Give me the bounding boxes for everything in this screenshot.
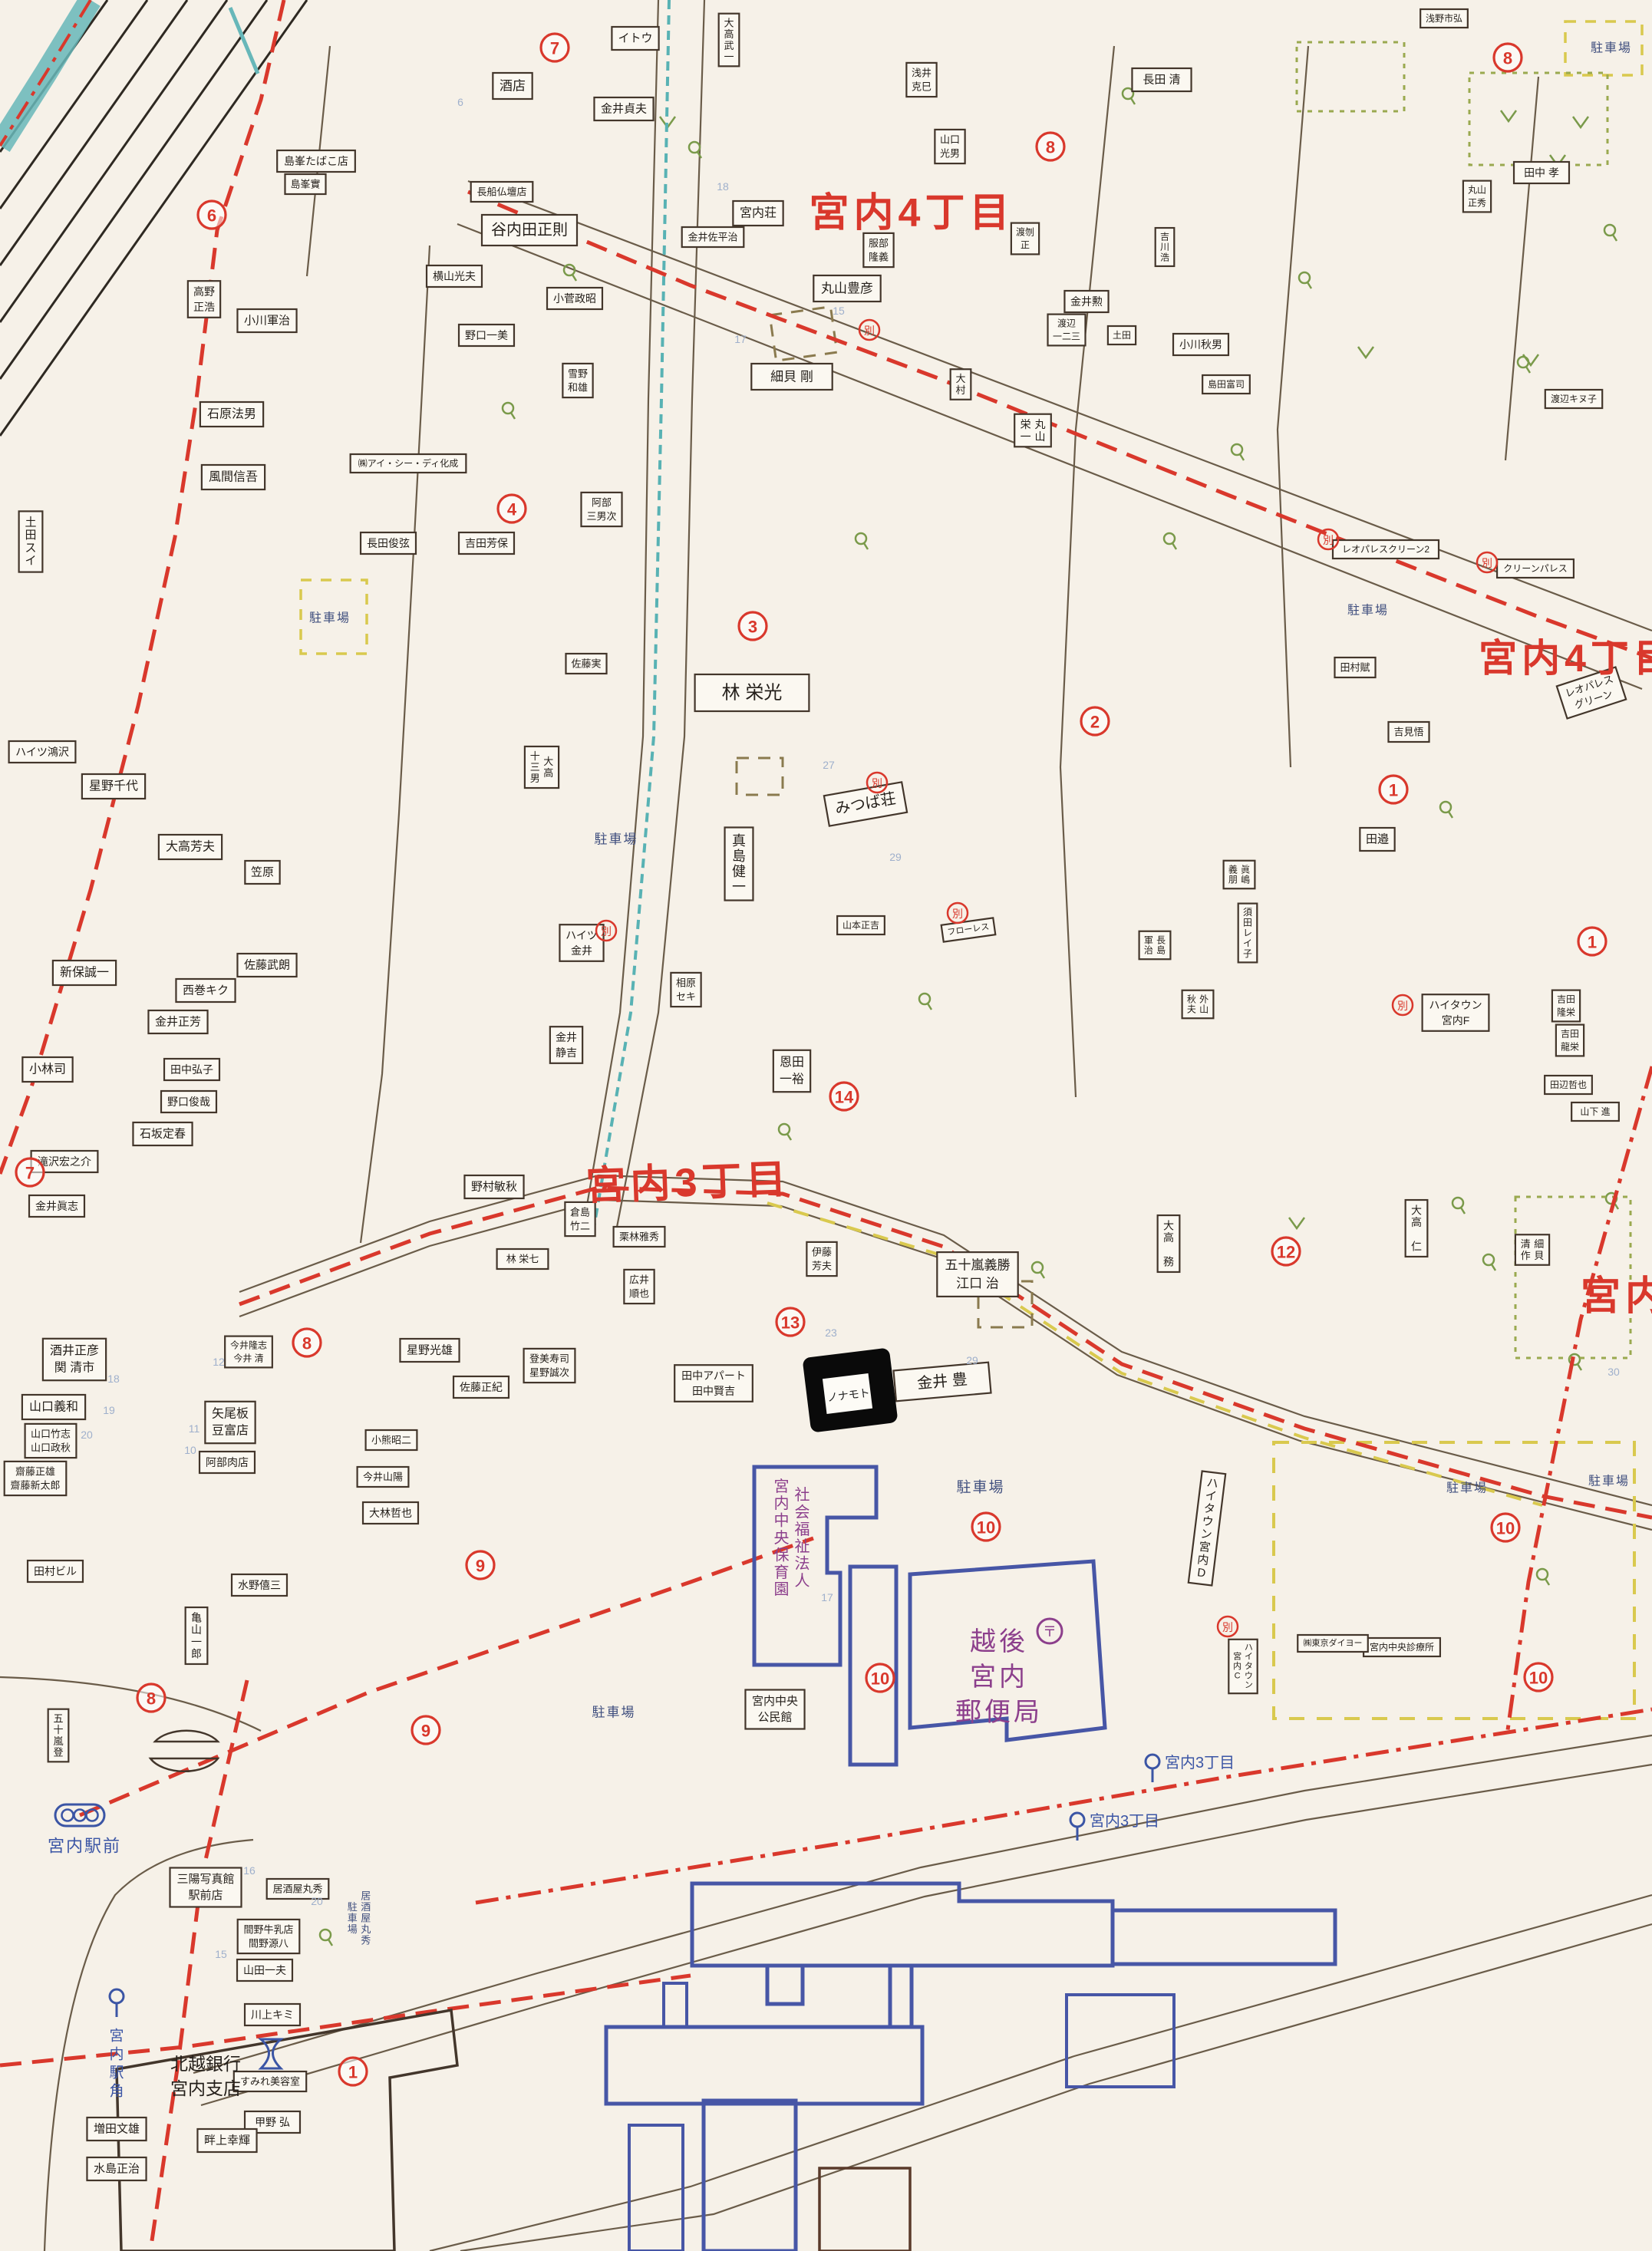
building-label: 高: [543, 767, 553, 779]
circled-number-value: 9: [421, 1722, 430, 1741]
building-label: 浅井: [912, 67, 932, 78]
building: 小川秋男: [1173, 334, 1228, 355]
building: 増田文雄: [87, 2118, 146, 2141]
building-label: 丸: [361, 1923, 371, 1935]
building: 田村賦: [1334, 658, 1375, 677]
building-label: 武: [724, 40, 734, 51]
building-label: 子: [1243, 948, 1252, 959]
parking-label: 駐車場: [1588, 1475, 1630, 1488]
building: 長船仏壇店: [471, 182, 533, 202]
building: 林 栄七: [497, 1249, 549, 1269]
building-label: 務: [1163, 1256, 1174, 1268]
building-label: 新保誠一: [60, 966, 109, 980]
parking-label: 駐車場: [1446, 1481, 1488, 1495]
building: 雪野和雄: [562, 364, 592, 397]
building: 島峯たばこ店: [277, 150, 355, 172]
building-label: 一二三: [1053, 331, 1080, 341]
building-label: 細貝 剛: [770, 370, 813, 384]
building-label: 金井眞志: [35, 1200, 78, 1212]
building: ハイタウン宮内F: [1423, 994, 1489, 1031]
lot-number: 23: [825, 1327, 837, 1339]
building: 石坂定春: [133, 1122, 192, 1145]
building: 横山光夫: [427, 265, 482, 287]
building: 五十嵐義勝江口 治: [937, 1252, 1017, 1297]
svg-text:別: 別: [872, 777, 882, 789]
building: 丸山栄一: [1014, 414, 1051, 447]
building-label: 金井貞夫: [601, 103, 647, 116]
building: 長田 清: [1132, 68, 1191, 91]
building: 長田俊弦: [361, 532, 416, 554]
building: 外山秋夫: [1182, 990, 1214, 1018]
building: 土田: [1108, 326, 1136, 344]
building-label: 栄: [1021, 418, 1031, 430]
building: 長島軍治: [1139, 931, 1171, 959]
building-label: 山口政秋: [31, 1442, 71, 1454]
building-label: 法: [795, 1555, 810, 1573]
circled-number-value: 13: [781, 1313, 800, 1333]
building: 新保誠一: [53, 961, 116, 985]
building-label: 高: [724, 28, 734, 40]
building: 宮内中央診療所: [1363, 1638, 1440, 1656]
building-label: 小川軍治: [244, 315, 290, 328]
residential-map-scan: 島峯たばこ店島峯實高野正浩小川軍治石原法男風間信吾土田スイハイツ鴻沢星野千代大高…: [0, 0, 1652, 2251]
building: ハイタウン宮内C: [1228, 1640, 1257, 1693]
building-label: 関 清市: [54, 1361, 94, 1375]
building-label: 夫: [1187, 1004, 1196, 1015]
building-label: 正: [1021, 239, 1030, 250]
building: 相原セキ: [671, 973, 701, 1007]
svg-text:別: 別: [952, 908, 963, 920]
svg-text:別: 別: [864, 325, 875, 337]
building-label: 江口 治: [956, 1276, 999, 1290]
building: 三陽写真館駅前店: [170, 1868, 242, 1907]
district-label: 宮内4丁目: [810, 191, 1014, 236]
building-label: 内: [774, 1495, 790, 1512]
building-label: 島峯たばこ店: [284, 155, 348, 167]
building-label: すみれ美容室: [240, 2076, 300, 2088]
building-label: 小熊昭二: [371, 1435, 411, 1446]
building: 金井勲: [1064, 291, 1108, 312]
building-label: 田中賢吉: [692, 1385, 735, 1397]
building-label: 竹二: [570, 1221, 590, 1232]
building-label: 治: [1144, 945, 1153, 956]
building: 今井隆志今井 清: [225, 1336, 272, 1368]
building-label: 田: [25, 529, 36, 542]
building: ㈱東京ダイヨー: [1298, 1635, 1368, 1652]
building-label: ス: [25, 542, 36, 555]
building-label: 和雄: [568, 382, 588, 394]
building-label: 石原法男: [207, 407, 256, 421]
building: 吉田芳保: [459, 532, 514, 554]
building: 風間信吾: [202, 465, 265, 489]
building-label: 高野: [193, 285, 215, 298]
building-label: 長: [1156, 934, 1166, 945]
building: 小菅政昭: [547, 288, 602, 309]
building-label: 細: [1534, 1238, 1544, 1250]
bus-stop-name: 内: [109, 2046, 124, 2063]
building-label: 央: [774, 1529, 790, 1547]
building: 野村敏秋: [464, 1175, 523, 1198]
building-label: イ: [1205, 1489, 1218, 1504]
building: 眞嶋義朋: [1224, 861, 1255, 888]
building: 佐藤実: [566, 654, 606, 674]
building-label: 田邉: [1366, 833, 1389, 846]
building-label: 三陽写真館: [176, 1872, 234, 1886]
building-label: 矢尾板: [212, 1406, 249, 1420]
building-label: 山: [1199, 1004, 1208, 1015]
circled-number-value: 1: [1389, 781, 1398, 800]
building-label: 宮内中央: [752, 1695, 798, 1708]
lot-number: 20: [81, 1429, 93, 1441]
parking-label: 駐車場: [592, 1706, 636, 1720]
building: 今井山陽: [358, 1467, 409, 1487]
building-label: ン: [1245, 1681, 1253, 1690]
building: 島峯實: [285, 174, 325, 194]
lot-number: 18: [107, 1373, 120, 1385]
building-label: 公民館: [757, 1711, 792, 1724]
building: 須田レイ子: [1238, 904, 1258, 963]
circled-number-value: 9: [476, 1557, 485, 1576]
building-label: 正浩: [193, 301, 215, 313]
building: 田辺哲也: [1545, 1076, 1592, 1094]
bus-stop-name: 宮: [109, 2028, 124, 2045]
building: 伊藤芳夫: [806, 1242, 836, 1276]
building-label: 須: [1243, 907, 1252, 918]
building-label: 宮内F: [1442, 1014, 1470, 1027]
building-label: 屋: [361, 1913, 371, 1924]
building: 吉川浩: [1156, 228, 1175, 266]
building-label: イ: [1245, 1653, 1253, 1662]
building: 山口光男: [935, 130, 964, 163]
building-label: 宮: [1198, 1541, 1211, 1555]
circled-number-value: 6: [207, 206, 216, 226]
building: 浅野市弘: [1420, 9, 1468, 28]
lot-number: 12: [213, 1356, 225, 1368]
circled-number-value: 8: [1503, 49, 1512, 68]
bus-stop-name: 宮内3丁目: [1090, 1812, 1159, 1830]
building-label: 健: [732, 864, 746, 879]
building-label: 秋: [1187, 994, 1196, 1004]
building-label: 郎: [191, 1648, 202, 1660]
building-label: 小川秋男: [1179, 338, 1222, 351]
building: 広井順也: [624, 1270, 654, 1303]
building: 酒店: [493, 73, 532, 99]
building: 宮内荘: [733, 201, 783, 226]
building-label: ハイツ: [566, 929, 598, 941]
building-label: 大: [955, 373, 965, 384]
building: 渡辺一二三: [1048, 315, 1086, 346]
building: 田中アパート田中賢吉: [674, 1365, 753, 1402]
building-label: 丸山豊彦: [821, 282, 873, 296]
circled-number-value: 4: [507, 500, 517, 519]
building-label: 林 栄七: [506, 1254, 539, 1265]
building-label: 中: [774, 1512, 790, 1530]
building: 川上キミ: [245, 2004, 300, 2025]
building-label: 作: [1521, 1250, 1531, 1261]
lot-number: 11: [189, 1422, 200, 1435]
building: 大高芳夫: [159, 835, 222, 859]
circled-number: 7: [541, 34, 569, 61]
building-label: ウ: [1202, 1514, 1215, 1529]
building: 小熊昭二: [366, 1430, 417, 1450]
circled-number: 1: [1380, 776, 1407, 803]
parking-label: 駐車場: [956, 1479, 1004, 1496]
building-label: ン: [1199, 1528, 1212, 1542]
building-label: 川: [1160, 242, 1169, 252]
building: 五十嵐登: [48, 1709, 69, 1762]
building-label: 林 栄光: [722, 683, 783, 704]
building-label: 浅野市弘: [1426, 12, 1462, 24]
building-label: 石坂定春: [140, 1128, 186, 1141]
building: 大村: [951, 369, 971, 400]
building-label: 保: [774, 1546, 790, 1564]
building: 田邉: [1360, 828, 1394, 851]
building-label: 人: [795, 1572, 810, 1590]
building-label: 亀: [191, 1611, 202, 1623]
building-label: 真: [732, 833, 746, 849]
building-label: 丸: [1034, 418, 1045, 430]
building-label: 田中アパート: [681, 1369, 746, 1382]
parking-label: 駐車場: [309, 611, 351, 625]
building: ハイツ鴻沢: [9, 741, 76, 763]
building-label: 渡刎: [1016, 226, 1034, 238]
lot-number: 16: [243, 1864, 256, 1877]
building: 大高 務: [1158, 1215, 1180, 1272]
building-label: レ: [1243, 928, 1252, 938]
building-label: 大: [543, 756, 553, 767]
building: 亀山一郎: [186, 1607, 208, 1664]
building-label: 渡辺キヌ子: [1551, 393, 1597, 404]
building-label: 内: [1196, 1553, 1209, 1567]
building-label: 星野誠次: [529, 1367, 569, 1379]
building: 山本正吉: [837, 916, 885, 934]
building-label: 小菅政昭: [553, 292, 596, 305]
building-label: 宮内荘: [740, 206, 777, 220]
parking-label: 駐車場: [595, 832, 638, 847]
lot-number: 18: [717, 180, 729, 193]
circled-number: 10: [866, 1664, 894, 1692]
circled-number: 2: [1081, 707, 1109, 735]
building: 矢尾板豆富店: [205, 1402, 255, 1443]
circled-number-value: 8: [302, 1334, 312, 1353]
circled-number-value: 12: [1277, 1243, 1295, 1262]
building: レオパレスクリーン2: [1333, 540, 1439, 559]
lot-number: 6: [457, 96, 463, 108]
svg-text:別: 別: [1222, 1621, 1233, 1633]
building: 金井眞志: [29, 1195, 84, 1217]
building: 田中弘子: [164, 1059, 219, 1080]
building: 細貝 剛: [751, 364, 832, 390]
bus-stop-name: 宮内3丁目: [1165, 1754, 1235, 1771]
building: 星野千代: [82, 774, 145, 799]
building: 服部隆義: [863, 233, 893, 267]
building: 石原法男: [200, 402, 263, 427]
building: 渡辺キヌ子: [1545, 390, 1602, 408]
building-label: 宮: [1233, 1651, 1241, 1662]
building-label: 島: [1156, 944, 1166, 956]
building-label: 島: [732, 849, 746, 864]
building-label: 田: [1243, 918, 1252, 928]
circled-number-value: 3: [748, 618, 757, 637]
building-label: 高: [1411, 1216, 1422, 1228]
circled-number: 4: [498, 495, 526, 522]
building-label: 大: [1411, 1204, 1422, 1216]
building: 齋藤正雄齋藤新太郎: [5, 1462, 67, 1495]
building-label: 園: [774, 1581, 790, 1598]
lot-number: 19: [103, 1404, 115, 1416]
building-label: 駐: [348, 1901, 358, 1913]
circled-number-value: 2: [1090, 713, 1100, 732]
building: 山口義和: [22, 1395, 85, 1419]
building-label: 居: [361, 1890, 371, 1901]
building: 野口俊哉: [161, 1091, 216, 1112]
building: 間野牛乳店間野源八: [238, 1920, 300, 1953]
building: 栗林雅秀: [614, 1227, 665, 1247]
building-label: 金井勲: [1070, 295, 1103, 308]
building: 金井貞夫: [594, 97, 653, 120]
building: 島田富司: [1202, 375, 1250, 394]
building-label: 甲野 弘: [255, 2116, 290, 2128]
building: 谷内田正則: [482, 215, 577, 246]
building: 大林哲也: [363, 1502, 418, 1524]
building-label: ハイツ鴻沢: [15, 746, 69, 758]
circled-number: 10: [1525, 1663, 1552, 1691]
building-label: 金井佐平治: [688, 232, 737, 243]
building-label: イトウ: [618, 32, 652, 45]
lot-number: 30: [1607, 1366, 1620, 1378]
building-label: クリーンパレス: [1503, 563, 1567, 574]
building-label: 光男: [940, 148, 960, 160]
building-label: 五十嵐義勝: [945, 1258, 1011, 1273]
building-label: 風間信吾: [209, 470, 258, 484]
building: 真島健一: [725, 827, 753, 900]
building: 田中 孝: [1514, 162, 1569, 183]
building-label: 宮内中央診療所: [1370, 1641, 1434, 1653]
building-label: 外: [1199, 994, 1208, 1004]
building-label: レオパレスクリーン2: [1342, 544, 1429, 555]
building-label: 山口義和: [29, 1400, 78, 1414]
circled-number: 1: [339, 2058, 367, 2085]
building: 恩田一裕: [773, 1050, 810, 1092]
building-label: 長田俊弦: [367, 537, 410, 549]
building: 吉見悟: [1388, 722, 1429, 742]
building-label: 五: [53, 1713, 63, 1725]
lot-number: 17: [821, 1591, 833, 1603]
building-label: 吉見悟: [1393, 727, 1423, 738]
circled-number: 9: [412, 1716, 440, 1744]
circled-number-value: 10: [871, 1669, 889, 1689]
circled-number: 8: [137, 1684, 165, 1712]
building-label: 田中 孝: [1524, 166, 1559, 179]
building-label: 阿部: [592, 496, 612, 508]
circled-number: 6: [198, 201, 226, 229]
building-label: 渡辺: [1057, 318, 1076, 329]
building-label: 浩: [1160, 252, 1169, 262]
circled-number-value: 10: [1529, 1669, 1548, 1688]
building: 小川軍治: [237, 309, 296, 332]
building-label: 佐藤正紀: [460, 1381, 503, 1393]
building: 水島正治: [87, 2157, 146, 2180]
building-label: 育: [774, 1564, 790, 1581]
building-label: 齋藤正雄: [15, 1465, 55, 1477]
building: 宮内中央公民館: [745, 1690, 804, 1729]
building-label: 大: [724, 18, 734, 29]
building-label: 一: [732, 879, 746, 895]
building-label: 星野千代: [89, 779, 138, 793]
building-label: 川上キミ: [251, 2009, 294, 2021]
building-label: 酒店: [500, 79, 526, 94]
building-label: 十: [53, 1724, 63, 1735]
building-label: 一: [724, 51, 734, 62]
circled-number: 10: [972, 1513, 1000, 1541]
building-label: ハ: [1245, 1643, 1253, 1652]
circled-number-value: 10: [1496, 1519, 1515, 1538]
building: 浅井克巳: [906, 63, 936, 97]
building-label: 一裕: [780, 1073, 804, 1086]
building-label: 山本正吉: [842, 920, 879, 931]
building-label: 酒: [361, 1901, 371, 1913]
station-front-label: 宮内駅前: [48, 1837, 121, 1856]
building-label: 星野光雄: [407, 1344, 453, 1357]
svg-text:別: 別: [1323, 534, 1334, 546]
building-label: 三: [530, 762, 540, 773]
postal-mark-glyph: 〒: [1043, 1624, 1057, 1640]
building: 金井正芳: [148, 1010, 207, 1033]
building: 星野光雄: [400, 1339, 459, 1362]
building: 丸山豊彦: [813, 275, 880, 302]
building-label: 義: [1228, 863, 1238, 875]
building-label: 伊藤: [812, 1246, 832, 1257]
building-label: 社: [795, 1486, 810, 1504]
circled-number: 10: [1492, 1514, 1519, 1541]
building-label: 金井: [556, 1031, 577, 1043]
building-label: 宮: [774, 1478, 790, 1495]
bus-stop-name: 駅: [109, 2065, 124, 2081]
post-office-name: 郵便局: [955, 1698, 1043, 1727]
district-label: 宮内4丁目: [1479, 637, 1652, 680]
building-label: 水野僖三: [238, 1579, 281, 1591]
building-label: 居酒屋丸秀: [272, 1884, 322, 1895]
building-label: 吉田: [1557, 994, 1575, 1005]
building-label: 北越銀行: [170, 2054, 241, 2074]
building-label: 大林哲也: [369, 1507, 412, 1519]
building-label: 静吉: [556, 1046, 577, 1059]
building: 渡刎正: [1011, 223, 1039, 255]
building-label: 田中弘子: [170, 1063, 213, 1076]
building-label: 隆義: [869, 252, 889, 263]
building-label: 畔上幸輝: [204, 2134, 250, 2147]
building: 大高武一: [719, 14, 740, 67]
lot-number: 17: [734, 333, 747, 345]
building-label: 吉田: [1561, 1029, 1579, 1040]
building-label: 野口俊哉: [167, 1096, 210, 1108]
circled-number: 9: [467, 1551, 494, 1579]
building-label: 笠原: [251, 866, 274, 879]
building-label: 一: [1021, 430, 1031, 443]
building: 田村ビル: [28, 1561, 83, 1582]
building-label: 吉: [1160, 232, 1169, 242]
building-label: 駅前店: [188, 1889, 223, 1902]
circled-number: 13: [777, 1308, 804, 1336]
building-label: 齋藤新太郎: [10, 1480, 60, 1491]
building: 山田一夫: [237, 1959, 292, 1981]
building: 細貝清作: [1515, 1234, 1549, 1265]
building-label: 田村ビル: [34, 1565, 77, 1577]
building: 酒井正彦関 清市: [43, 1339, 106, 1380]
building-label: 阿部肉店: [206, 1456, 249, 1468]
building: 笠原: [245, 861, 279, 884]
building: 丸山正秀: [1463, 181, 1491, 213]
